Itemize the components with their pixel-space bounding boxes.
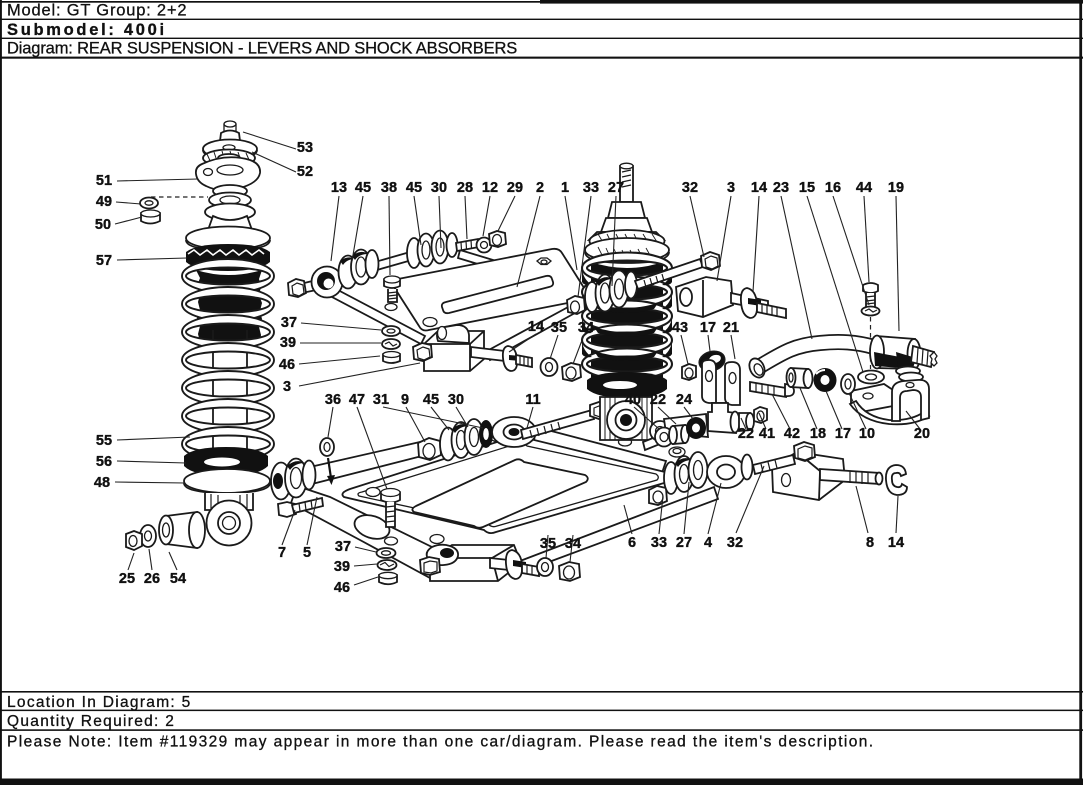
svg-text:14: 14 <box>888 535 904 551</box>
svg-text:39: 39 <box>280 335 296 351</box>
svg-text:25: 25 <box>119 571 135 587</box>
svg-text:24: 24 <box>676 392 692 408</box>
svg-text:3: 3 <box>727 180 735 196</box>
svg-text:4: 4 <box>704 535 712 551</box>
svg-text:29: 29 <box>507 180 523 196</box>
svg-text:27: 27 <box>676 535 692 551</box>
svg-text:11: 11 <box>525 392 540 408</box>
svg-text:49: 49 <box>96 194 112 210</box>
svg-text:53: 53 <box>297 140 313 156</box>
svg-text:34: 34 <box>565 536 581 552</box>
svg-text:14: 14 <box>751 180 767 196</box>
svg-text:5: 5 <box>303 545 311 561</box>
svg-text:38: 38 <box>381 180 397 196</box>
svg-text:50: 50 <box>95 217 111 233</box>
svg-text:48: 48 <box>94 475 110 491</box>
svg-text:27: 27 <box>608 180 624 196</box>
svg-text:42: 42 <box>784 426 800 442</box>
svg-text:26: 26 <box>144 571 160 587</box>
svg-text:36: 36 <box>325 392 341 408</box>
svg-text:37: 37 <box>335 539 351 555</box>
svg-text:19: 19 <box>888 180 904 196</box>
svg-text:37: 37 <box>281 315 297 331</box>
svg-text:35: 35 <box>551 320 567 336</box>
svg-text:22: 22 <box>650 392 666 408</box>
svg-text:8: 8 <box>866 535 874 551</box>
svg-text:56: 56 <box>96 454 112 470</box>
svg-text:23: 23 <box>773 180 789 196</box>
svg-text:18: 18 <box>810 426 826 442</box>
svg-text:15: 15 <box>799 180 815 196</box>
svg-text:7: 7 <box>278 545 286 561</box>
svg-text:14: 14 <box>528 319 544 335</box>
svg-text:41: 41 <box>759 426 775 442</box>
svg-text:45: 45 <box>406 180 422 196</box>
svg-text:47: 47 <box>349 392 365 408</box>
svg-text:13: 13 <box>331 180 347 196</box>
svg-text:10: 10 <box>859 426 875 442</box>
svg-text:45: 45 <box>355 180 371 196</box>
svg-text:46: 46 <box>334 580 350 596</box>
svg-text:3: 3 <box>283 379 291 395</box>
svg-text:9: 9 <box>401 392 409 408</box>
svg-text:45: 45 <box>423 392 439 408</box>
svg-text:21: 21 <box>723 320 739 336</box>
svg-text:33: 33 <box>583 180 599 196</box>
svg-text:34: 34 <box>578 320 594 336</box>
svg-text:32: 32 <box>727 535 743 551</box>
svg-text:17: 17 <box>835 426 851 442</box>
svg-text:Location In Diagram: 5: Location In Diagram: 5 <box>7 694 192 711</box>
svg-text:55: 55 <box>96 433 112 449</box>
svg-text:Model: GT Group: 2+2: Model: GT Group: 2+2 <box>7 2 187 20</box>
svg-text:33: 33 <box>651 535 667 551</box>
svg-text:30: 30 <box>431 180 447 196</box>
svg-text:31: 31 <box>373 392 389 408</box>
svg-text:6: 6 <box>628 535 636 551</box>
svg-text:40: 40 <box>625 392 641 408</box>
svg-text:2: 2 <box>536 180 544 196</box>
svg-text:51: 51 <box>96 173 112 189</box>
svg-text:1: 1 <box>561 180 569 196</box>
svg-text:28: 28 <box>457 180 473 196</box>
svg-text:43: 43 <box>672 320 688 336</box>
svg-text:35: 35 <box>540 536 556 552</box>
svg-text:57: 57 <box>96 253 112 269</box>
svg-text:Please Note: Item #119329 may: Please Note: Item #119329 may appear in … <box>7 734 875 751</box>
svg-text:32: 32 <box>682 180 698 196</box>
svg-text:Quantity Required: 2: Quantity Required: 2 <box>7 713 175 730</box>
svg-text:20: 20 <box>914 426 930 442</box>
svg-text:39: 39 <box>334 559 350 575</box>
svg-text:12: 12 <box>482 180 498 196</box>
svg-text:Submodel: 400i: Submodel: 400i <box>7 21 167 39</box>
svg-text:16: 16 <box>825 180 841 196</box>
svg-text:Diagram: REAR SUSPENSION - LEV: Diagram: REAR SUSPENSION - LEVERS AND SH… <box>7 40 517 58</box>
svg-text:46: 46 <box>279 357 295 373</box>
svg-text:30: 30 <box>448 392 464 408</box>
svg-text:22: 22 <box>738 426 754 442</box>
svg-text:54: 54 <box>170 571 186 587</box>
svg-text:17: 17 <box>700 320 716 336</box>
svg-text:44: 44 <box>856 180 872 196</box>
svg-text:52: 52 <box>297 164 313 180</box>
